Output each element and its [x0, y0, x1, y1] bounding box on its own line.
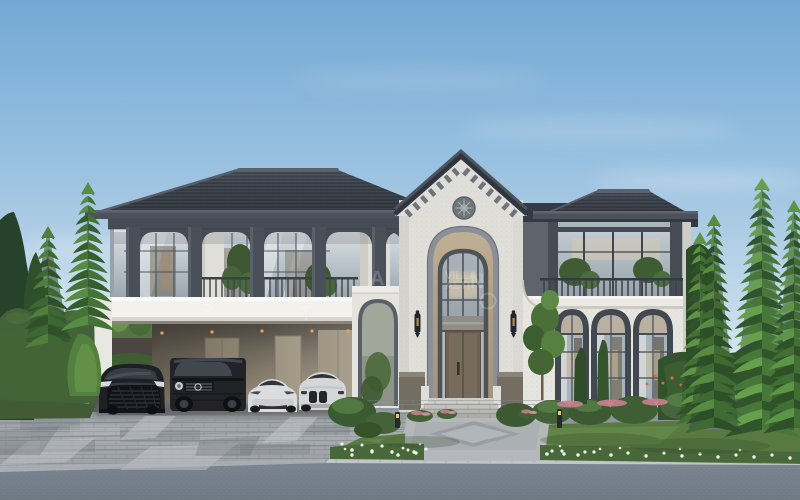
svg-text:N: N — [470, 271, 484, 293]
svg-text:A: A — [370, 268, 384, 290]
svg-text:S: S — [200, 295, 213, 317]
svg-text:T: T — [300, 303, 312, 325]
svg-text:ASTI: ASTI — [445, 280, 470, 292]
